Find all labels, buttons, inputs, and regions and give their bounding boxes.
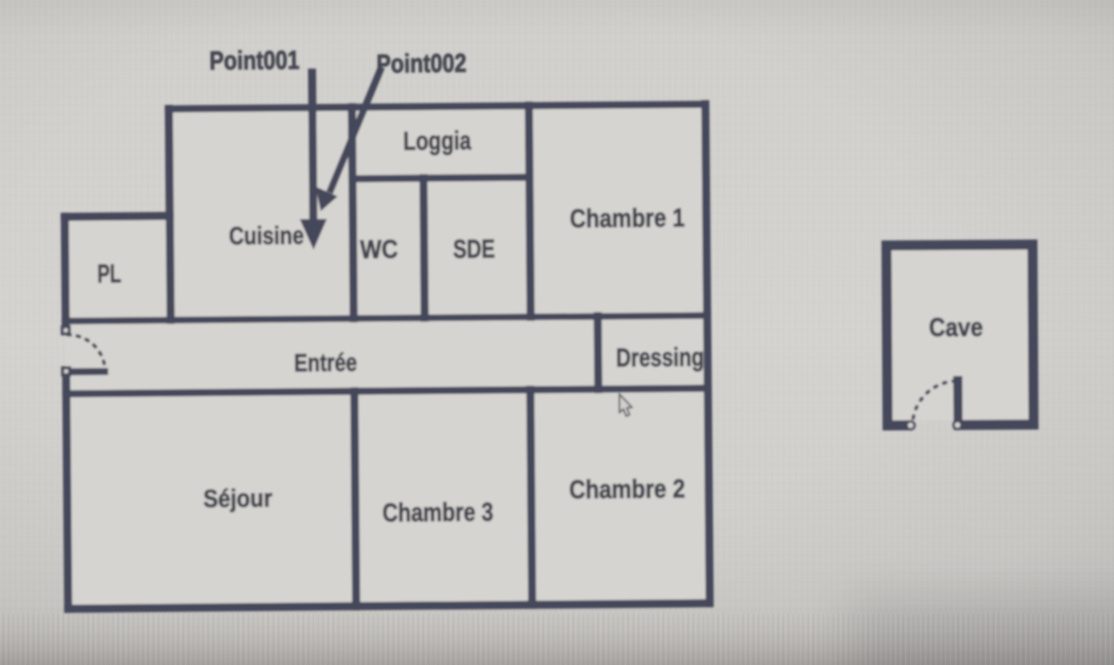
svg-text:Cave: Cave <box>929 312 983 342</box>
svg-text:Point002: Point002 <box>376 48 466 79</box>
svg-text:WC: WC <box>360 234 398 264</box>
svg-text:Dressing: Dressing <box>616 342 704 373</box>
svg-text:Cuisine: Cuisine <box>229 222 304 251</box>
svg-text:Chambre 1: Chambre 1 <box>570 202 685 233</box>
svg-text:Chambre 3: Chambre 3 <box>382 497 493 528</box>
svg-text:Point001: Point001 <box>209 45 299 76</box>
svg-text:Loggia: Loggia <box>403 125 472 156</box>
svg-text:Chambre 2: Chambre 2 <box>569 473 685 504</box>
svg-text:Entrée: Entrée <box>294 349 357 378</box>
svg-text:SDE: SDE <box>453 234 495 264</box>
svg-text:Séjour: Séjour <box>203 485 272 514</box>
svg-text:PL: PL <box>97 258 121 288</box>
